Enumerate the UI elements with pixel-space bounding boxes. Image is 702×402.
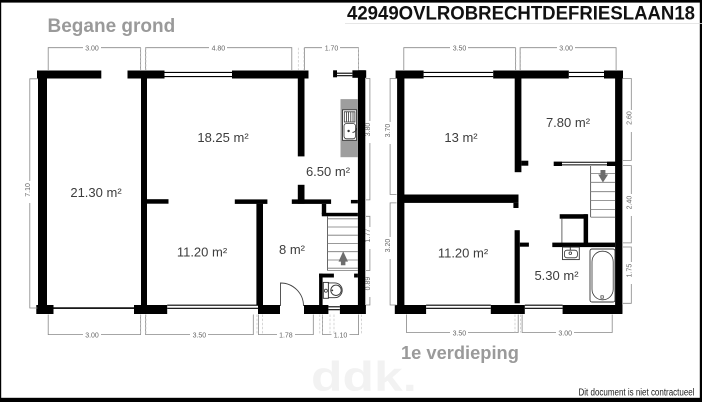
svg-text:3.50: 3.50 bbox=[453, 330, 467, 337]
svg-text:18.25 m²: 18.25 m² bbox=[197, 130, 249, 145]
svg-text:6.50 m²: 6.50 m² bbox=[306, 164, 351, 179]
svg-text:1.77: 1.77 bbox=[365, 229, 372, 243]
svg-text:8 m²: 8 m² bbox=[279, 242, 306, 257]
svg-text:1.10: 1.10 bbox=[334, 332, 348, 339]
svg-text:7.80 m²: 7.80 m² bbox=[546, 115, 591, 130]
svg-text:2.60: 2.60 bbox=[626, 111, 633, 125]
svg-text:4.80: 4.80 bbox=[212, 46, 226, 53]
svg-text:3.00: 3.00 bbox=[85, 332, 99, 339]
svg-text:Begane grond: Begane grond bbox=[48, 16, 176, 37]
svg-text:3.00: 3.00 bbox=[558, 330, 572, 337]
svg-text:3.80: 3.80 bbox=[365, 123, 372, 137]
svg-text:0.89: 0.89 bbox=[365, 277, 372, 291]
svg-text:11.20 m²: 11.20 m² bbox=[177, 245, 228, 260]
svg-text:3.50: 3.50 bbox=[453, 46, 467, 53]
svg-text:7.10: 7.10 bbox=[25, 183, 32, 197]
svg-text:21.30 m²: 21.30 m² bbox=[70, 185, 122, 200]
svg-text:13 m²: 13 m² bbox=[444, 130, 478, 145]
svg-text:3.70: 3.70 bbox=[385, 124, 392, 138]
svg-text:1.78: 1.78 bbox=[279, 332, 293, 339]
svg-text:3.20: 3.20 bbox=[385, 239, 392, 253]
svg-text:1e verdieping: 1e verdieping bbox=[401, 342, 519, 363]
svg-text:3.50: 3.50 bbox=[193, 332, 207, 339]
svg-text:Dit document is niet contractu: Dit document is niet contractueel bbox=[579, 388, 695, 399]
svg-text:2.40: 2.40 bbox=[626, 196, 633, 210]
svg-text:3.00: 3.00 bbox=[85, 46, 99, 53]
svg-text:11.20 m²: 11.20 m² bbox=[438, 246, 489, 261]
svg-text:5.30 m²: 5.30 m² bbox=[534, 268, 579, 283]
svg-text:42949OVLROBRECHTDEFRIESLAAN18: 42949OVLROBRECHTDEFRIESLAAN18 bbox=[347, 4, 695, 25]
svg-text:3.00: 3.00 bbox=[559, 46, 573, 53]
svg-text:1.75: 1.75 bbox=[626, 264, 633, 278]
svg-text:1.70: 1.70 bbox=[325, 46, 339, 53]
